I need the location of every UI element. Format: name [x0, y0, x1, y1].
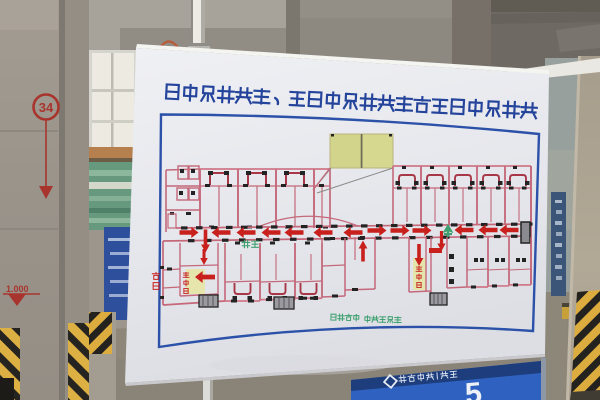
svg-text:34: 34: [39, 100, 54, 115]
svg-text:5: 5: [464, 377, 484, 400]
svg-text:1.000: 1.000: [6, 284, 29, 294]
